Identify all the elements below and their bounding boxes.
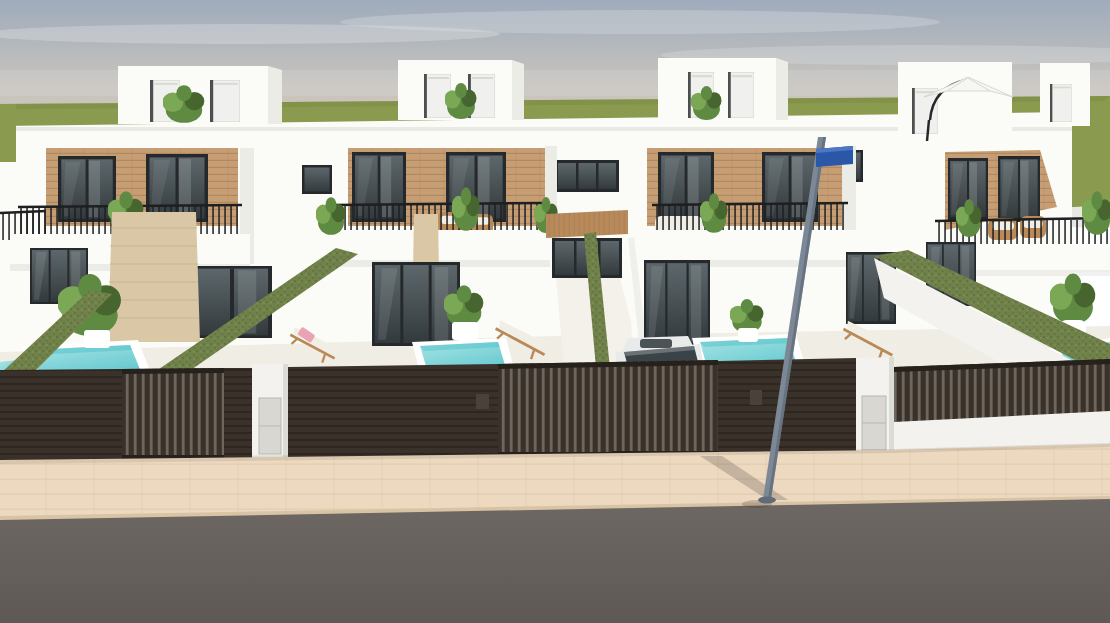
small-window-glass bbox=[305, 168, 330, 192]
upper-window bbox=[998, 156, 1040, 222]
stairwell-window bbox=[555, 160, 619, 192]
pole-base bbox=[758, 497, 776, 504]
ground-glass-doors bbox=[644, 260, 710, 346]
car-sunroof bbox=[640, 339, 672, 348]
fence-gate-2 bbox=[498, 362, 612, 458]
roof-door bbox=[912, 88, 938, 134]
fence-panel bbox=[288, 364, 498, 460]
fence-panel bbox=[224, 368, 252, 460]
travertine-column bbox=[108, 212, 200, 342]
bulkhead-3 bbox=[658, 58, 788, 120]
grass-sliver-left bbox=[0, 104, 16, 162]
roof-door bbox=[728, 72, 754, 118]
utility-pillar-2 bbox=[856, 357, 894, 457]
balcony-railing-unit-3 bbox=[652, 203, 848, 234]
cloud bbox=[340, 10, 940, 34]
render-image: New-build townhouses with private pools … bbox=[0, 0, 1110, 623]
planter bbox=[84, 330, 110, 348]
roof-door bbox=[210, 80, 240, 122]
balcony-parapet bbox=[644, 230, 858, 262]
house-number-plate bbox=[750, 390, 762, 405]
fence-gate-driveway bbox=[612, 360, 718, 457]
road bbox=[0, 499, 1110, 623]
roof-door bbox=[1050, 84, 1072, 122]
fence-panel bbox=[0, 369, 122, 463]
house-number-plate bbox=[476, 394, 489, 409]
planter bbox=[738, 328, 758, 342]
planter bbox=[452, 322, 478, 340]
fence-gate-1 bbox=[122, 368, 224, 461]
street-fence bbox=[0, 357, 1110, 463]
utility-pillar-1 bbox=[252, 364, 288, 463]
townhouse-render-svg: New-build townhouses with private pools … bbox=[0, 0, 1110, 623]
